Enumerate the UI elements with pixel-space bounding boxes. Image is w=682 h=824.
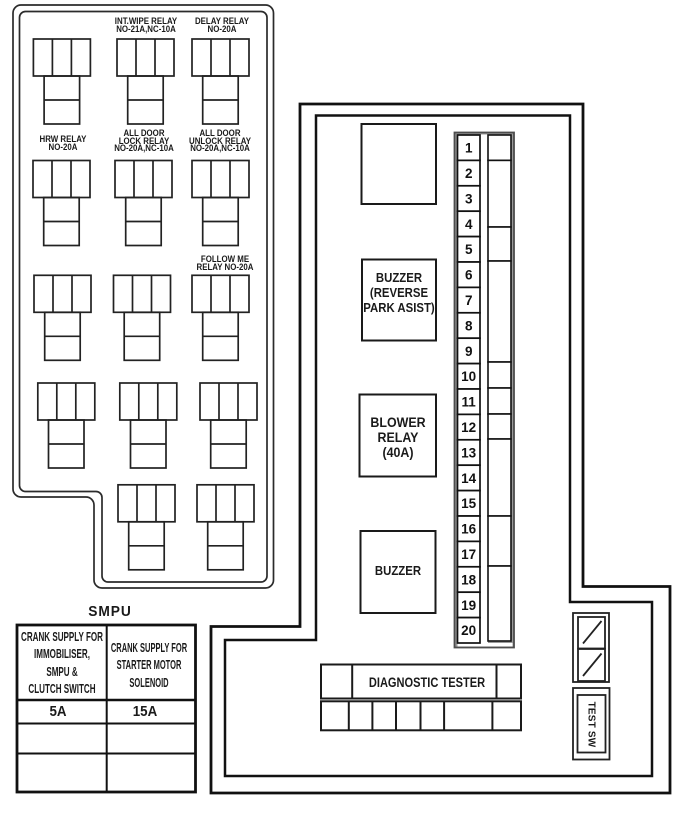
svg-text:20: 20 <box>461 623 476 638</box>
svg-text:2: 2 <box>465 166 473 181</box>
svg-text:17: 17 <box>461 547 476 562</box>
svg-text:9: 9 <box>465 344 473 359</box>
svg-text:16: 16 <box>461 522 477 537</box>
svg-text:15: 15 <box>461 496 477 511</box>
svg-text:8: 8 <box>465 318 473 333</box>
svg-text:1: 1 <box>465 141 473 156</box>
svg-text:11: 11 <box>462 395 477 410</box>
svg-text:10: 10 <box>461 369 476 384</box>
svg-text:14: 14 <box>461 471 477 486</box>
svg-text:3: 3 <box>465 191 473 206</box>
svg-text:19: 19 <box>461 598 476 613</box>
svg-text:5: 5 <box>465 242 473 257</box>
svg-text:4: 4 <box>465 217 473 232</box>
